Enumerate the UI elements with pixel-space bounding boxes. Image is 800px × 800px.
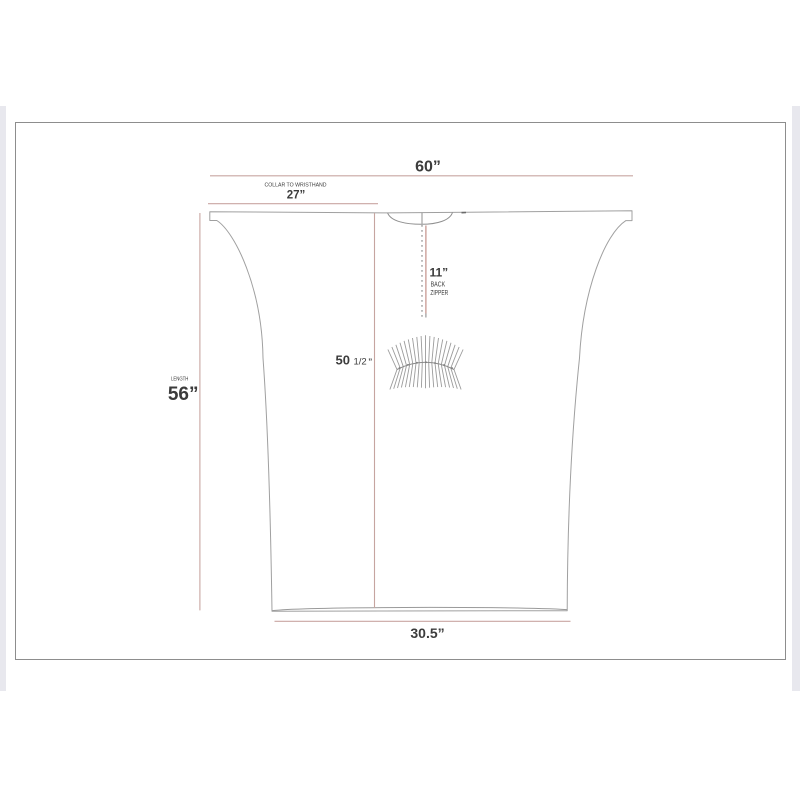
svg-text:27”: 27” (287, 190, 306, 202)
svg-text:56”: 56” (168, 384, 199, 405)
svg-text:60”: 60” (415, 159, 441, 176)
svg-text:11”: 11” (430, 266, 449, 280)
svg-text:COLLAR TO WRISTHAND: COLLAR TO WRISTHAND (264, 183, 326, 189)
svg-text:LENGTH: LENGTH (171, 377, 189, 383)
svg-text:ZIPPER: ZIPPER (430, 288, 448, 297)
svg-text:30.5”: 30.5” (410, 625, 444, 641)
